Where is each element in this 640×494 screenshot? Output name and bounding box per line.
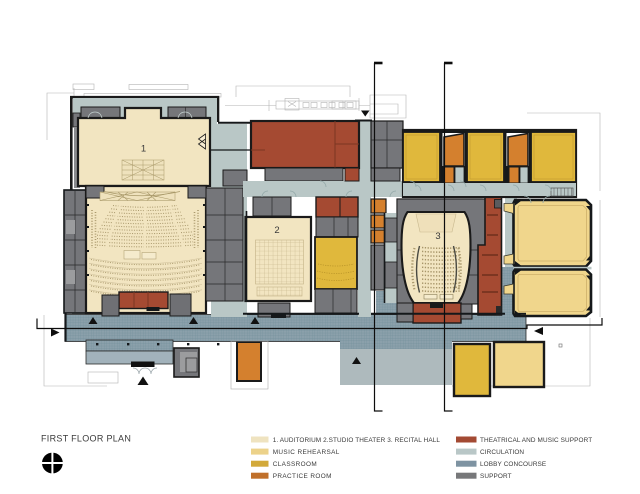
svg-text:2: 2: [274, 225, 279, 236]
svg-text:1. AUDITORIUM 2.STUDIO THEATER: 1. AUDITORIUM 2.STUDIO THEATER 3. RECITA…: [273, 437, 441, 444]
svg-text:FIRST FLOOR PLAN: FIRST FLOOR PLAN: [41, 434, 131, 444]
svg-text:1: 1: [141, 144, 146, 155]
svg-text:PRACTICE ROOM: PRACTICE ROOM: [273, 473, 332, 480]
svg-text:LOBBY CONCOURSE: LOBBY CONCOURSE: [480, 461, 546, 468]
svg-text:SUPPORT: SUPPORT: [480, 473, 512, 480]
svg-text:3: 3: [435, 231, 440, 242]
svg-text:CIRCULATION: CIRCULATION: [480, 449, 524, 456]
svg-text:MUSIC REHEARSAL: MUSIC REHEARSAL: [273, 449, 340, 456]
svg-text:CLASSROOM: CLASSROOM: [273, 461, 317, 468]
svg-text:THEATRICAL AND MUSIC SUPPORT: THEATRICAL AND MUSIC SUPPORT: [480, 437, 592, 444]
